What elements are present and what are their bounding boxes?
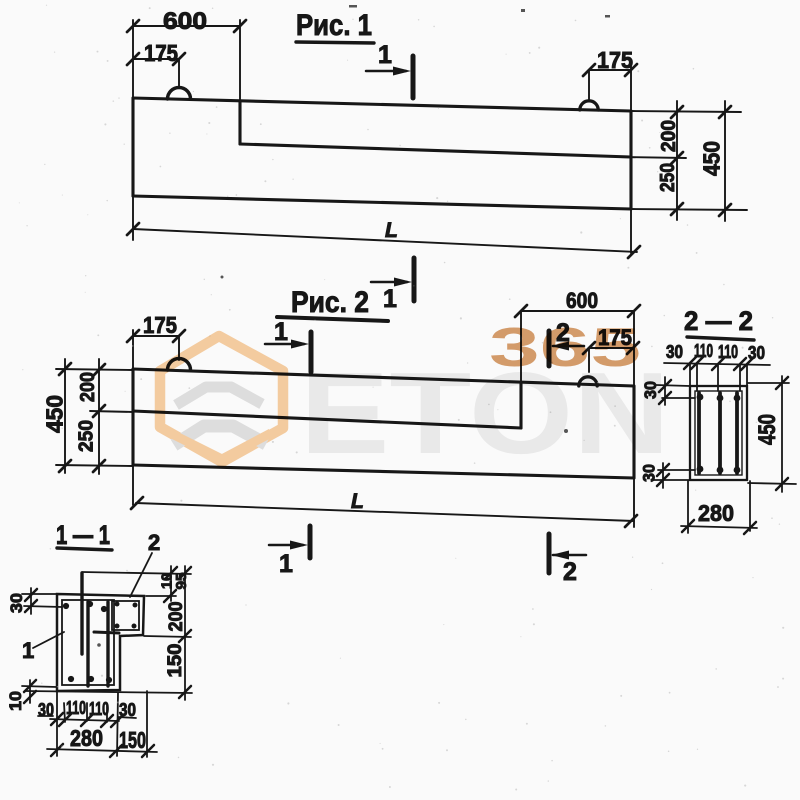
- svg-text:1: 1: [378, 41, 392, 69]
- svg-text:200: 200: [658, 120, 680, 152]
- svg-text:110: 110: [694, 341, 713, 361]
- svg-text:L: L: [351, 490, 364, 513]
- svg-text:150: 150: [165, 644, 186, 678]
- svg-text:250: 250: [76, 420, 98, 452]
- svg-text:600: 600: [566, 288, 598, 313]
- svg-text:600: 600: [163, 8, 207, 35]
- svg-text:110: 110: [89, 699, 109, 719]
- svg-text:365: 365: [489, 316, 641, 378]
- svg-text:1: 1: [279, 550, 293, 578]
- svg-text:95: 95: [173, 573, 190, 590]
- svg-text:200: 200: [166, 602, 187, 632]
- svg-text:450: 450: [698, 141, 724, 176]
- svg-text:175: 175: [143, 312, 177, 338]
- svg-text:2: 2: [563, 558, 577, 586]
- svg-text:Рис. 2: Рис. 2: [291, 286, 369, 319]
- svg-text:2: 2: [148, 530, 160, 555]
- svg-text:200: 200: [77, 372, 99, 402]
- svg-text:10: 10: [6, 691, 25, 711]
- svg-text:30: 30: [7, 593, 26, 613]
- svg-text:280: 280: [698, 500, 734, 526]
- svg-text:110: 110: [718, 342, 738, 362]
- svg-text:150: 150: [119, 727, 146, 753]
- svg-text:280: 280: [70, 725, 103, 751]
- svg-text:175: 175: [144, 40, 178, 66]
- svg-text:1: 1: [22, 638, 34, 663]
- svg-text:450: 450: [754, 414, 781, 445]
- svg-text:2 — 2: 2 — 2: [684, 306, 753, 336]
- svg-text:110: 110: [66, 698, 86, 718]
- svg-text:L: L: [385, 219, 398, 242]
- svg-text:1: 1: [274, 318, 288, 346]
- svg-text:250: 250: [657, 163, 679, 192]
- svg-text:450: 450: [41, 395, 67, 433]
- svg-text:30: 30: [38, 700, 54, 720]
- svg-text:175: 175: [597, 47, 633, 73]
- svg-text:30: 30: [748, 343, 765, 363]
- svg-text:1 — 1: 1 — 1: [56, 520, 110, 550]
- svg-text:1: 1: [383, 285, 397, 313]
- svg-text:Рис. 1: Рис. 1: [296, 9, 372, 42]
